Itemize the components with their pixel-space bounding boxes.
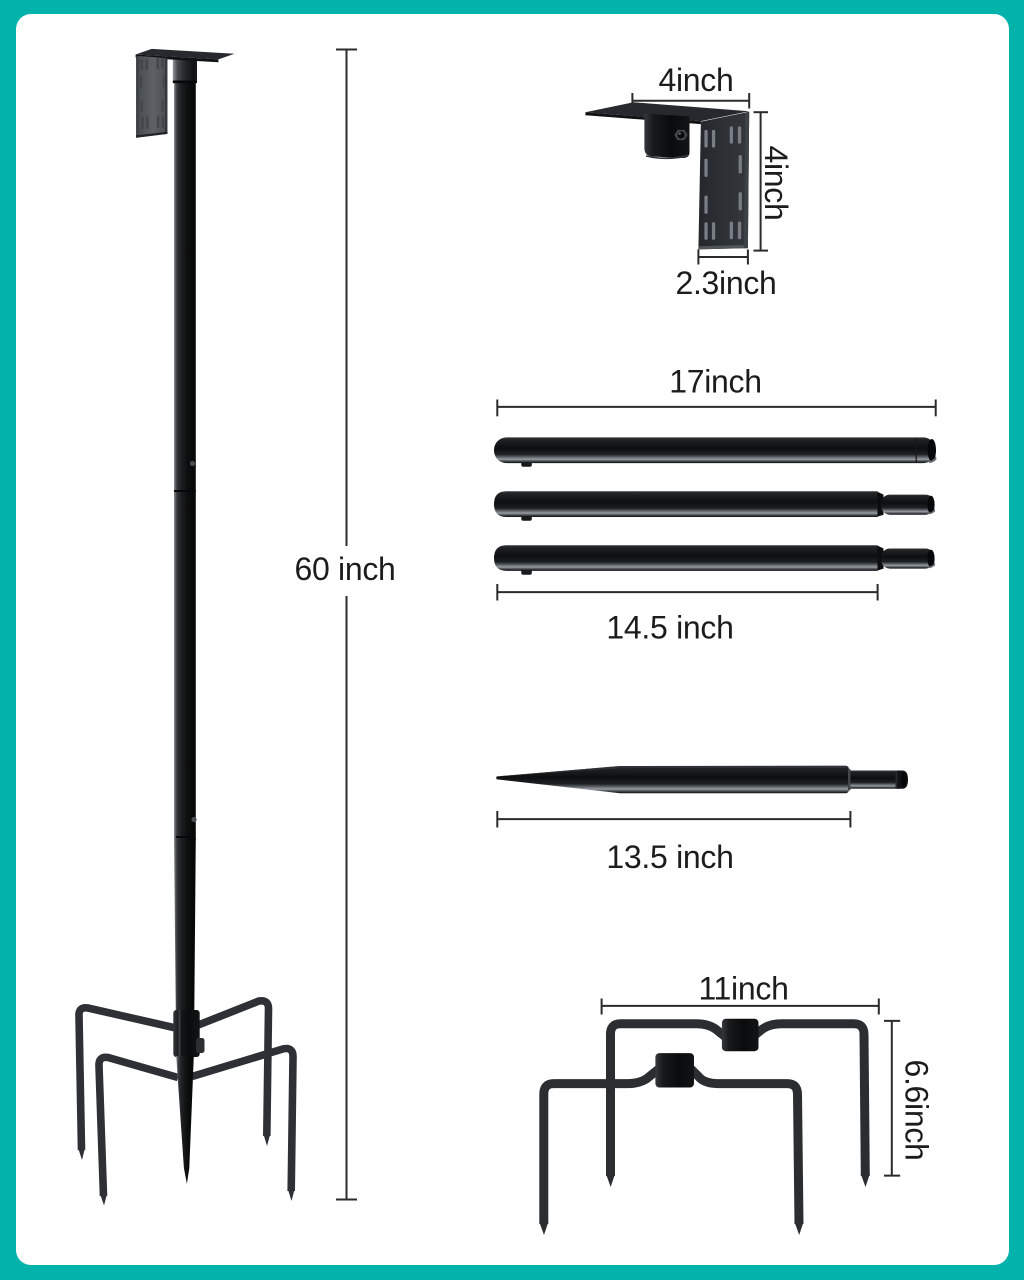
svg-text:2.3inch: 2.3inch	[675, 265, 776, 301]
svg-text:13.5 inch: 13.5 inch	[606, 839, 733, 875]
svg-text:60 inch: 60 inch	[294, 551, 395, 587]
svg-text:4inch: 4inch	[758, 145, 794, 220]
svg-text:6.6inch: 6.6inch	[899, 1059, 935, 1160]
svg-text:17inch: 17inch	[669, 364, 762, 400]
svg-text:11inch: 11inch	[698, 971, 788, 1007]
svg-text:14.5 inch: 14.5 inch	[606, 610, 733, 646]
svg-text:4inch: 4inch	[658, 62, 733, 98]
